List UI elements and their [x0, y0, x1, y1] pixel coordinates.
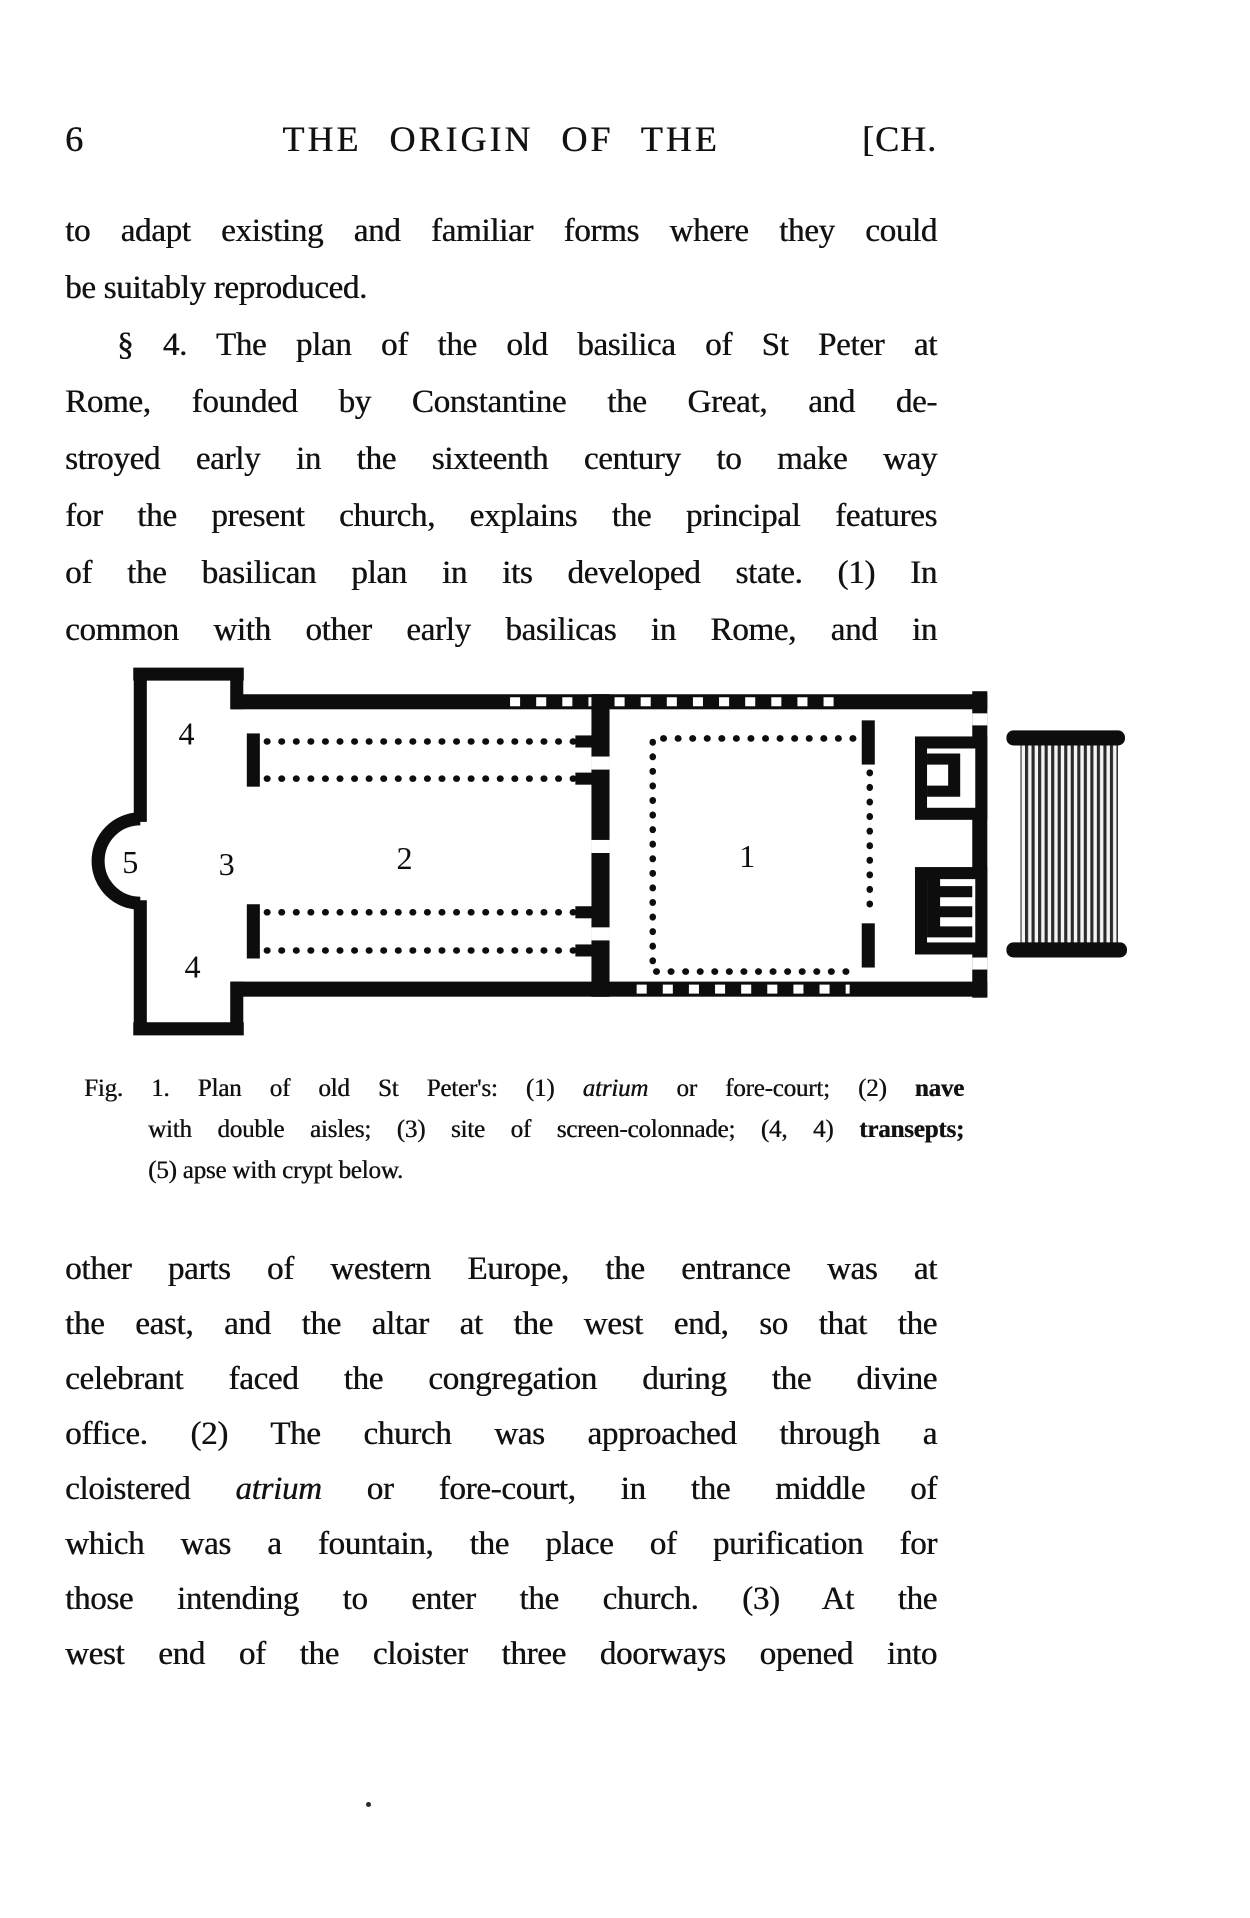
plan-labels: 5 4 4 3 2 1	[122, 715, 755, 984]
caption-italic-term: atrium	[583, 1075, 648, 1102]
paragraph-3: other parts of western Europe, the entra…	[65, 1242, 937, 1682]
chapter-mark: [CH.	[862, 118, 937, 160]
text-line: those intending to enter the church. (3)…	[65, 1572, 937, 1627]
paragraph-1: to adapt existing and familiar forms whe…	[65, 203, 937, 317]
page-header: 6 THE ORIGIN OF THE [CH.	[65, 118, 937, 160]
nave-south-wall	[231, 982, 610, 997]
atrium-north-wall	[591, 694, 987, 709]
text-segment: or fore-court, in the middle of	[322, 1471, 937, 1507]
cloister-colonnade-dots	[653, 738, 870, 971]
cloister-pier-north	[862, 720, 875, 764]
label-transept-north: 4	[178, 715, 194, 751]
text-line: to adapt existing and familiar forms whe…	[65, 203, 937, 260]
caption-line: (5) apse with crypt below.	[84, 1150, 964, 1191]
text-line: cloistered atrium or fore-court, in the …	[65, 1462, 937, 1517]
basilica-plan-drawing: 5 4 4 3 2 1	[78, 664, 1128, 1044]
cloister-pier-south	[862, 923, 875, 967]
steps-bottom-edge	[1006, 942, 1127, 957]
text-line: be suitably reproduced.	[65, 260, 937, 317]
text-line: § 4. The plan of the old basilica of St …	[65, 317, 937, 374]
page-number: 6	[65, 118, 83, 160]
atrium-south-wall	[591, 982, 987, 997]
paragraph-2: § 4. The plan of the old basilica of St …	[65, 317, 937, 659]
text-line: of the basilican plan in its developed s…	[65, 545, 937, 602]
text-line: stroyed early in the sixteenth century t…	[65, 431, 937, 488]
text-segment: cloistered	[65, 1471, 235, 1507]
label-screen-colonnade: 3	[219, 846, 235, 882]
caption-text: with double aisles; (3) site of screen-c…	[148, 1116, 859, 1143]
caption-bold-term: transepts;	[859, 1116, 964, 1143]
text-line: common with other early basilicas in Rom…	[65, 602, 937, 659]
aisle-colonnade-dots	[267, 741, 577, 950]
caption-line: Fig. 1. Plan of old St Peter's: (1) atri…	[84, 1068, 964, 1109]
nave-north-wall	[231, 694, 610, 709]
book-page-scan: 6 THE ORIGIN OF THE [CH. to adapt existi…	[0, 0, 1250, 1918]
figure-caption: Fig. 1. Plan of old St Peter's: (1) atri…	[84, 1068, 964, 1191]
label-nave: 2	[397, 840, 413, 876]
label-transept-south: 4	[185, 949, 201, 985]
text-line: the east, and the altar at the west end,…	[65, 1297, 937, 1352]
steps-top-edge	[1006, 730, 1125, 745]
caption-text: Fig. 1. Plan of old St Peter's: (1)	[84, 1075, 583, 1102]
entrance-steps-hatch	[1020, 736, 1117, 949]
caption-line: with double aisles; (3) site of screen-c…	[84, 1109, 964, 1150]
running-title: THE ORIGIN OF THE	[282, 118, 719, 160]
figure-plan-old-st-peters: 5 4 4 3 2 1	[78, 664, 1128, 1044]
printers-mark-dot	[366, 1802, 371, 1807]
text-line: office. (2) The church was approached th…	[65, 1407, 937, 1462]
text-line: Rome, founded by Constantine the Great, …	[65, 374, 937, 431]
caption-text: or fore-court; (2)	[648, 1075, 915, 1102]
text-line: other parts of western Europe, the entra…	[65, 1242, 937, 1297]
text-line: celebrant faced the congregation during …	[65, 1352, 937, 1407]
colonnade-responds	[247, 733, 593, 958]
text-line: west end of the cloister three doorways …	[65, 1627, 937, 1682]
text-line: for the present church, explains the pri…	[65, 488, 937, 545]
label-apse: 5	[122, 844, 138, 880]
label-atrium: 1	[739, 838, 755, 874]
caption-bold-term: nave	[915, 1075, 964, 1102]
italic-term: atrium	[235, 1471, 321, 1507]
text-line: which was a fountain, the place of purif…	[65, 1517, 937, 1572]
